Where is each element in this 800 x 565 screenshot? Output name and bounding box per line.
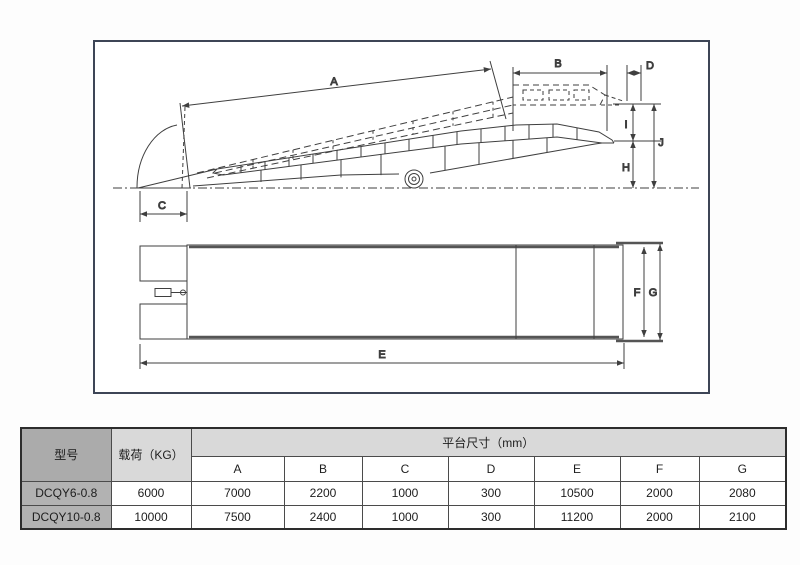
undercarriage: [193, 143, 602, 186]
header-model: 型号: [21, 428, 111, 481]
dim-H: H: [622, 141, 633, 188]
table-row: DCQY6-0.8 6000 7000 2200 1000 300 10500 …: [21, 481, 786, 505]
dim-label-D: D: [646, 60, 654, 72]
dim-D: D: [627, 60, 654, 101]
header-dim-e: E: [534, 456, 620, 481]
header-dim-b: B: [284, 456, 362, 481]
load-value: 10000: [111, 505, 191, 529]
dim-label-H: H: [622, 162, 630, 174]
dim-value-b: 2200: [284, 481, 362, 505]
support-leg-top: [140, 246, 187, 281]
towing-hitch: [155, 289, 187, 297]
dim-C: C: [140, 191, 187, 222]
dock-ramp-technical-drawing: A B D C: [95, 42, 708, 392]
header-dim-g: G: [699, 456, 786, 481]
support-leg-bottom: [140, 304, 187, 339]
dim-label-F: F: [634, 287, 641, 299]
lip-raised-dashed: [182, 107, 185, 188]
spec-table: 型号 载荷（KG） 平台尺寸（mm） A B C D E F G DCQY6-0…: [20, 427, 787, 530]
dim-value-e: 11200: [534, 505, 620, 529]
dim-value-a: 7000: [191, 481, 284, 505]
dim-value-d: 300: [448, 505, 534, 529]
dim-B: B: [513, 58, 607, 131]
deck-truss-rungs: [241, 124, 577, 173]
dim-I: I: [624, 104, 633, 141]
dim-value-c: 1000: [362, 481, 448, 505]
lip-rotation-arc: [137, 125, 177, 188]
dim-label-I: I: [624, 119, 627, 131]
header-platform-size: 平台尺寸（mm）: [191, 428, 786, 456]
model-name: DCQY10-0.8: [21, 505, 111, 529]
dim-value-b: 2400: [284, 505, 362, 529]
dim-label-E: E: [378, 349, 385, 361]
dim-label-G: G: [649, 287, 658, 299]
table-row: DCQY10-0.8 10000 7500 2400 1000 300 1120…: [21, 505, 786, 529]
wheel: [405, 170, 423, 188]
dim-value-f: 2000: [620, 505, 699, 529]
dim-G: G: [649, 244, 660, 340]
dim-label-B: B: [554, 58, 561, 70]
model-name: DCQY6-0.8: [21, 481, 111, 505]
plan-view: E F G: [140, 243, 663, 369]
dim-value-f: 2000: [620, 481, 699, 505]
side-view: A B D C: [113, 58, 699, 222]
dim-F: F: [634, 247, 644, 337]
platform-side-curbs: [189, 243, 663, 341]
dim-value-g: 2100: [699, 505, 786, 529]
raised-position-dashed: [197, 97, 513, 178]
dim-value-e: 10500: [534, 481, 620, 505]
dim-label-J: J: [658, 137, 664, 149]
dim-value-g: 2080: [699, 481, 786, 505]
header-load: 载荷（KG）: [111, 428, 191, 481]
page: A B D C: [0, 0, 800, 565]
dim-J: J: [654, 104, 664, 188]
header-dim-c: C: [362, 456, 448, 481]
deck-underside: [213, 137, 614, 175]
header-dim-f: F: [620, 456, 699, 481]
dim-value-d: 300: [448, 481, 534, 505]
dim-value-a: 7500: [191, 505, 284, 529]
deck-top-chord: [217, 124, 614, 169]
platform-outline: [187, 245, 623, 339]
platform-section-dividers: [516, 245, 594, 339]
header-dim-d: D: [448, 456, 534, 481]
load-value: 6000: [111, 481, 191, 505]
dim-label-A: A: [330, 76, 338, 88]
header-dim-a: A: [191, 456, 284, 481]
dim-label-C: C: [158, 200, 166, 212]
drawing-frame: A B D C: [93, 40, 710, 394]
dim-value-c: 1000: [362, 505, 448, 529]
dim-E: E: [140, 343, 624, 369]
